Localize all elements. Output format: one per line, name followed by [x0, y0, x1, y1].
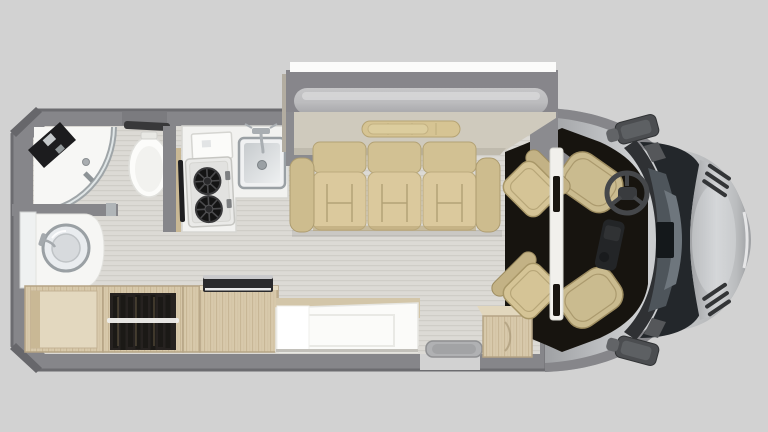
- back-cushion-1: [313, 142, 366, 173]
- oval-tray-inner: [368, 124, 428, 134]
- sofa: [290, 142, 502, 237]
- rearview-mirror-block: [656, 222, 674, 258]
- sink-drain: [258, 161, 267, 170]
- entry-step-tread: [432, 344, 476, 354]
- back-cushion-2: [368, 142, 421, 173]
- awning-roll: [294, 88, 548, 114]
- hood-highlight: [692, 185, 736, 295]
- tv-frame-edge: [203, 275, 273, 279]
- right-armrest: [476, 158, 500, 232]
- flip-up-shelf: [191, 132, 232, 160]
- seat-cushion-1: [313, 172, 366, 230]
- storage-row: [25, 275, 278, 352]
- two-burner-cooktop: [185, 157, 234, 227]
- sofa-front-shadow: [313, 226, 476, 231]
- bath-kitchen-wall: [163, 126, 176, 232]
- tv-screen-edge: [205, 288, 271, 291]
- floor-plan-svg: [0, 0, 768, 432]
- vanity-door-panel: [20, 212, 36, 288]
- left-armrest: [290, 158, 314, 232]
- vanity-bowl-inner: [52, 234, 80, 262]
- flat-tv: [203, 275, 273, 292]
- b-pillar-slot-lower: [553, 284, 560, 316]
- clothes-rail: [107, 318, 179, 323]
- base-cabinet-shadow: [31, 291, 40, 348]
- b-pillar-slot-upper: [553, 176, 560, 212]
- toilet-seat: [135, 146, 163, 192]
- tv-cabinet: [200, 286, 278, 352]
- cooktop-knob-2: [226, 199, 231, 208]
- bed: [276, 298, 420, 352]
- awning-roll-highlight: [302, 92, 540, 100]
- rv-floor-plan-image: [0, 0, 768, 432]
- bed-shadow: [276, 349, 418, 352]
- back-cushion-3: [423, 142, 476, 173]
- shower-drain: [83, 159, 90, 166]
- cooktop-knob-1: [225, 171, 230, 180]
- toilet-hinge: [141, 132, 157, 139]
- base-cabinet-panel: [31, 291, 97, 348]
- pillow: [277, 306, 309, 352]
- slide-out-exterior-strip: [290, 62, 556, 72]
- entry-step-box: [483, 316, 532, 357]
- seat-cushion-2: [368, 172, 421, 230]
- door-hinge: [106, 203, 116, 216]
- narrow-cabinet: [183, 286, 200, 352]
- seat-cushion-3: [423, 172, 476, 230]
- sofa-shadow: [292, 230, 502, 237]
